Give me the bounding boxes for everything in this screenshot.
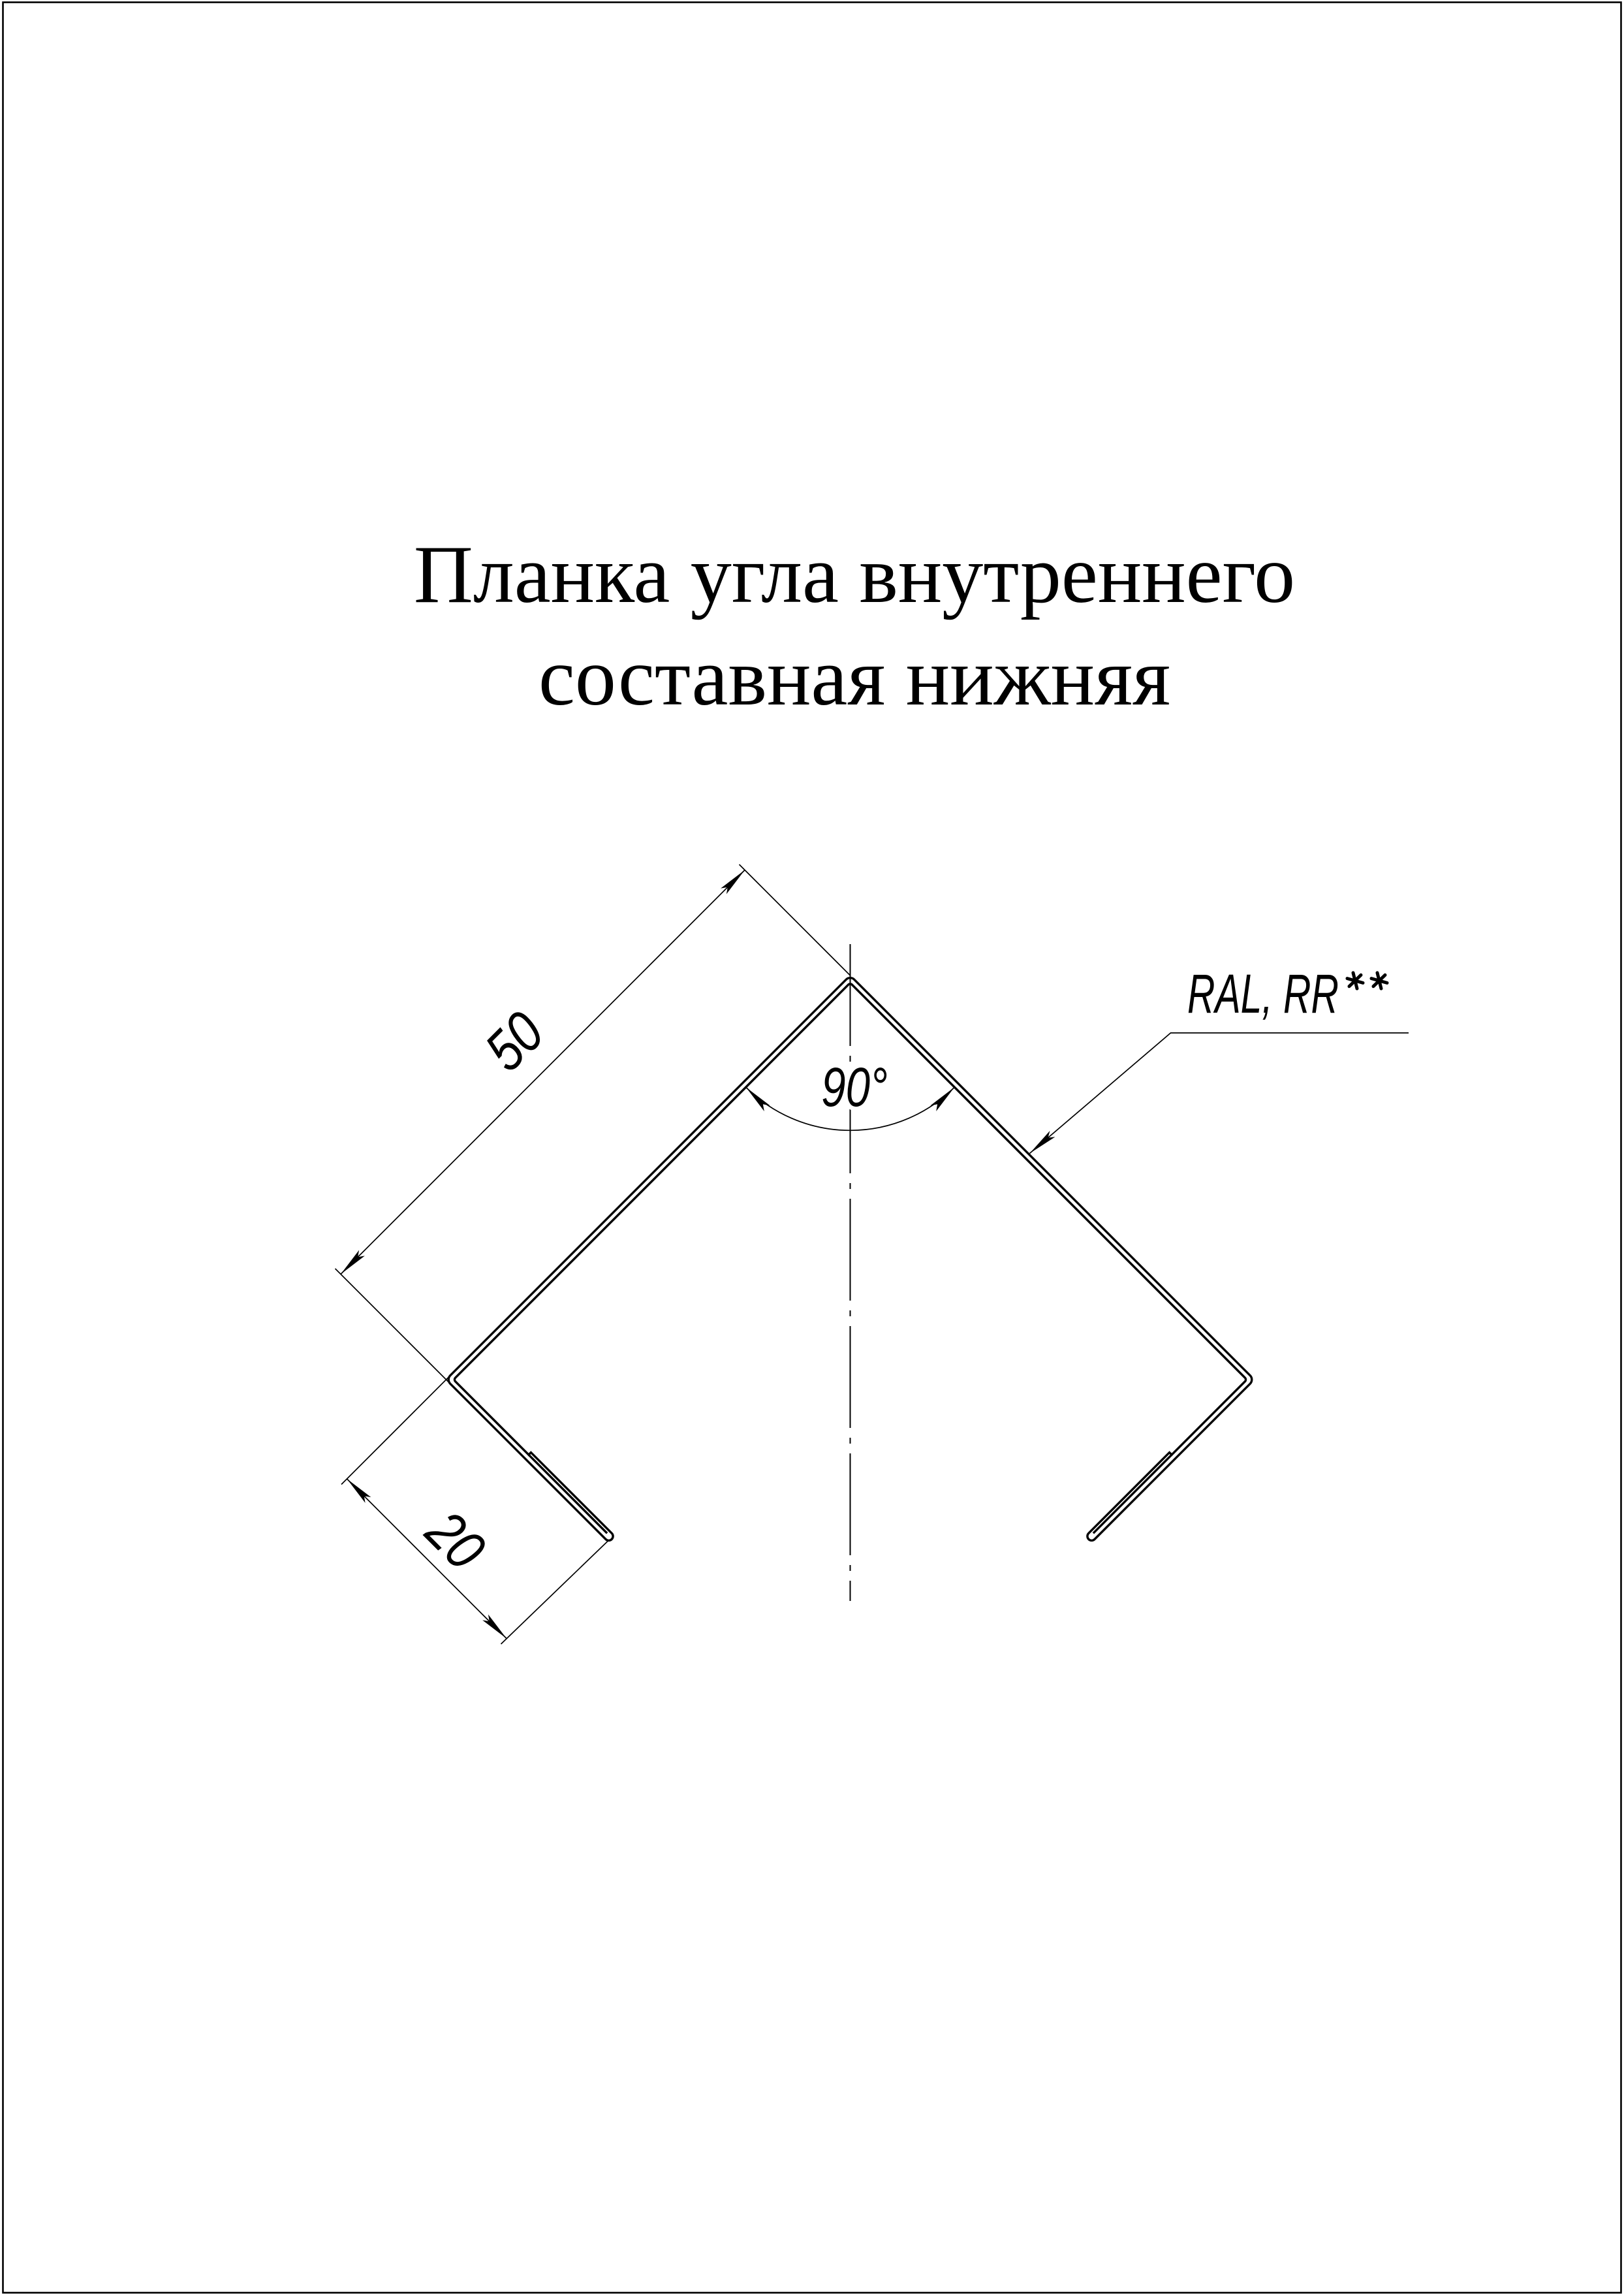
svg-text:Планка угла внутреннего: Планка угла внутреннего [414, 530, 1295, 620]
svg-text:RAL, RR: RAL, RR [1187, 964, 1339, 1025]
svg-text:составная нижняя: составная нижняя [539, 632, 1170, 723]
svg-text:90°: 90° [821, 1057, 888, 1118]
